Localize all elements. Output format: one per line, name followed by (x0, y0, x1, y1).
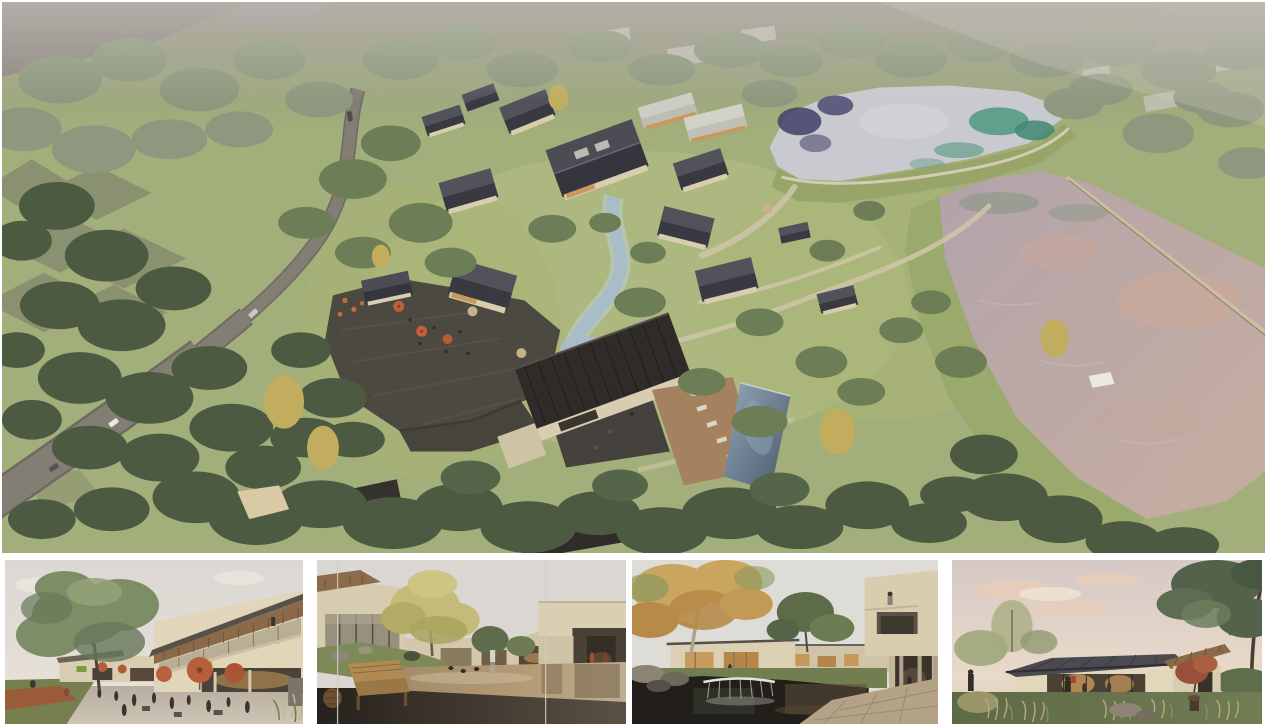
thumbnail-plaza-cafe (5, 560, 303, 724)
thumbnail-cantilever-pond (632, 560, 938, 724)
render-board (0, 0, 1267, 724)
green-tree (472, 626, 509, 654)
thumbnail-garden-pavilion (952, 560, 1262, 724)
green-tree-2 (507, 636, 536, 656)
balcony-person (888, 592, 893, 605)
garden-foreground (952, 691, 1262, 724)
main-aerial-render (2, 2, 1265, 553)
cantilever-building (538, 602, 626, 672)
thumbnail-courtyard-pond (317, 560, 626, 724)
